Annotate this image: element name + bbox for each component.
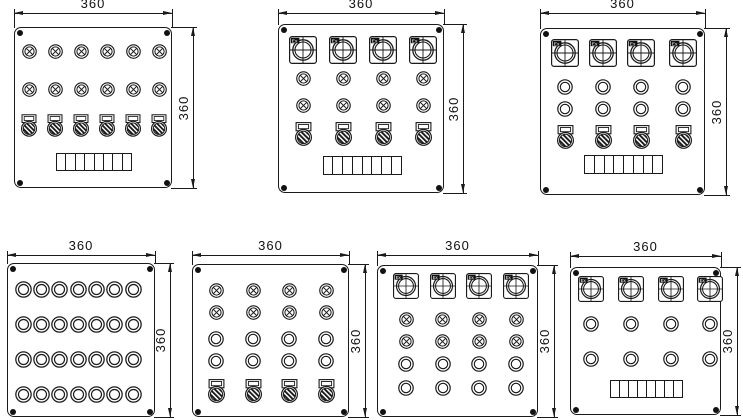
- push-button: [398, 356, 414, 372]
- mounting-screw: [10, 409, 16, 415]
- ex-meter: Ex: [669, 39, 697, 67]
- ex-meter: Ex: [409, 36, 437, 64]
- indicator-lamp: [376, 71, 391, 86]
- extension-line: [14, 9, 15, 28]
- push-button-glyph: [15, 281, 32, 298]
- push-button: [125, 281, 142, 298]
- indicator-lamp: [472, 312, 487, 327]
- dimension-line: [554, 265, 555, 417]
- push-button: [106, 316, 123, 333]
- extension-line: [171, 27, 197, 28]
- push-button-glyph: [208, 353, 224, 369]
- push-button-glyph: [125, 386, 142, 403]
- push-button-glyph: [15, 386, 32, 403]
- indicator-lamp-glyph: [282, 283, 297, 298]
- push-button: [471, 380, 487, 396]
- indicator-lamp: [48, 44, 63, 59]
- dimension-arrow-up-icon: [724, 28, 728, 37]
- selector-switch: [151, 114, 167, 137]
- indicator-lamp: [209, 305, 224, 320]
- push-button: [557, 101, 573, 117]
- extension-line: [570, 252, 571, 268]
- indicator-lamp-glyph: [509, 334, 524, 349]
- indicator-lamp: [246, 305, 261, 320]
- push-button: [208, 331, 224, 347]
- selector-switch-glyph: [47, 114, 63, 137]
- svg-text:Ex: Ex: [621, 278, 627, 283]
- push-button: [33, 386, 50, 403]
- push-button-glyph: [106, 281, 123, 298]
- push-button: [281, 331, 297, 347]
- selector-switch: [633, 125, 650, 149]
- dimension-width-label: 360: [258, 238, 283, 253]
- push-button-glyph: [633, 79, 649, 95]
- indicator-lamp: [509, 334, 524, 349]
- ex-meter: Ex: [393, 273, 419, 299]
- push-button: [633, 101, 649, 117]
- selector-switch: [47, 114, 63, 137]
- indicator-lamp: [100, 82, 115, 97]
- push-button: [557, 79, 573, 95]
- push-button: [663, 351, 679, 367]
- indicator-lamp: [509, 312, 524, 327]
- selector-switch-glyph: [415, 122, 432, 146]
- selector-switch: [557, 125, 574, 149]
- mounting-screw: [697, 31, 703, 37]
- svg-text:Ex: Ex: [700, 278, 706, 283]
- push-button: [623, 316, 639, 332]
- dimension-line: [14, 13, 172, 14]
- selector-switch-glyph: [375, 122, 392, 146]
- indicator-lamp-glyph: [126, 44, 141, 59]
- selector-switch: [99, 114, 115, 137]
- push-button-glyph: [435, 380, 451, 396]
- indicator-lamp: [296, 71, 311, 86]
- label-strip-cell: [673, 380, 683, 398]
- selector-switch: [125, 114, 141, 137]
- extension-line: [171, 188, 197, 189]
- push-button-glyph: [398, 380, 414, 396]
- push-button: [508, 380, 524, 396]
- push-button-glyph: [51, 351, 68, 368]
- indicator-lamp: [74, 44, 89, 59]
- ex-meter: Ex: [627, 39, 655, 67]
- indicator-lamp-glyph: [336, 71, 351, 86]
- selector-switch: [595, 125, 612, 149]
- indicator-lamp: [246, 283, 261, 298]
- push-button-glyph: [245, 353, 261, 369]
- indicator-lamp-glyph: [48, 44, 63, 59]
- push-button-glyph: [88, 281, 105, 298]
- push-button: [663, 316, 679, 332]
- dimension-arrow-left-icon: [7, 253, 16, 257]
- indicator-lamp: [319, 283, 334, 298]
- push-button-glyph: [702, 351, 718, 367]
- indicator-lamp-glyph: [152, 44, 167, 59]
- selector-switch: [245, 379, 262, 403]
- panel-28-buttons: [7, 263, 155, 417]
- dimension-line: [463, 24, 464, 193]
- mounting-screw: [147, 409, 153, 415]
- ex-meter-glyph: Ex: [589, 39, 617, 67]
- push-button: [675, 101, 691, 117]
- push-button: [398, 380, 414, 396]
- ex-meter: Ex: [329, 36, 357, 64]
- indicator-lamp-glyph: [416, 71, 431, 86]
- push-button: [208, 353, 224, 369]
- panel-8-lamps-8-buttons-4-switches: [192, 264, 349, 417]
- indicator-lamp-glyph: [209, 305, 224, 320]
- indicator-lamp: [435, 312, 450, 327]
- push-button: [33, 351, 50, 368]
- ex-meter-glyph: Ex: [578, 276, 604, 302]
- push-button-glyph: [471, 356, 487, 372]
- ex-meter: Ex: [578, 276, 604, 302]
- indicator-lamp: [296, 98, 311, 113]
- dimension-width-label: 360: [610, 0, 635, 11]
- indicator-lamp-glyph: [246, 305, 261, 320]
- indicator-lamp-glyph: [100, 44, 115, 59]
- push-button-glyph: [471, 380, 487, 396]
- indicator-lamp-glyph: [152, 82, 167, 97]
- push-button: [623, 351, 639, 367]
- indicator-lamp-glyph: [22, 82, 37, 97]
- mounting-screw: [713, 407, 719, 413]
- mounting-screw: [436, 27, 442, 33]
- indicator-lamp: [376, 98, 391, 113]
- push-button: [15, 281, 32, 298]
- push-button-glyph: [633, 101, 649, 117]
- drawing-stage: 360360 Ex Ex Ex Ex 360360 Ex Ex Ex Ex 36…: [0, 0, 743, 420]
- push-button-glyph: [675, 79, 691, 95]
- extension-line: [537, 417, 558, 418]
- mounting-screw: [281, 185, 287, 191]
- dimension-height-label: 360: [153, 328, 168, 353]
- push-button-glyph: [33, 386, 50, 403]
- selector-switch-glyph: [335, 122, 352, 146]
- selector-switch: [675, 125, 692, 149]
- push-button: [88, 351, 105, 368]
- indicator-lamp: [209, 283, 224, 298]
- push-button-glyph: [245, 331, 261, 347]
- ex-meter: Ex: [369, 36, 397, 64]
- indicator-lamp-glyph: [376, 98, 391, 113]
- push-button: [583, 351, 599, 367]
- svg-text:Ex: Ex: [332, 38, 338, 44]
- extension-line: [154, 263, 174, 264]
- dimension-arrow-left-icon: [192, 253, 201, 257]
- mounting-screw: [530, 409, 536, 415]
- push-button-glyph: [595, 101, 611, 117]
- indicator-lamp: [336, 71, 351, 86]
- extension-line: [278, 9, 279, 25]
- selector-switch: [318, 379, 335, 403]
- push-button: [51, 316, 68, 333]
- svg-text:Ex: Ex: [432, 275, 438, 280]
- dimension-arrow-up-icon: [168, 263, 172, 272]
- indicator-lamp-glyph: [472, 334, 487, 349]
- push-button-glyph: [508, 380, 524, 396]
- push-button: [125, 351, 142, 368]
- push-button: [70, 316, 87, 333]
- push-button-glyph: [623, 351, 639, 367]
- push-button: [106, 281, 123, 298]
- indicator-lamp: [336, 98, 351, 113]
- push-button: [595, 101, 611, 117]
- dimension-line: [540, 13, 705, 14]
- push-button-glyph: [583, 316, 599, 332]
- indicator-lamp: [416, 71, 431, 86]
- indicator-lamp-glyph: [296, 98, 311, 113]
- push-button: [675, 79, 691, 95]
- push-button: [88, 386, 105, 403]
- dimension-width-label: 360: [81, 0, 106, 11]
- push-button-glyph: [435, 356, 451, 372]
- mounting-screw: [147, 266, 153, 272]
- ex-meter-glyph: Ex: [669, 39, 697, 67]
- mounting-screw: [195, 409, 201, 415]
- panel-4-meters-8-lamps-8-buttons: Ex Ex Ex Ex: [377, 265, 538, 417]
- extension-line: [7, 251, 8, 264]
- push-button-glyph: [675, 101, 691, 117]
- indicator-lamp: [22, 44, 37, 59]
- ex-meter-glyph: Ex: [618, 276, 644, 302]
- push-button-glyph: [663, 316, 679, 332]
- selector-switch-glyph: [73, 114, 89, 137]
- extension-line: [540, 9, 541, 29]
- panel-4-meters-8-lamps-4-switches: Ex Ex Ex Ex: [278, 24, 444, 193]
- push-button: [702, 351, 718, 367]
- push-button: [51, 281, 68, 298]
- indicator-lamp-glyph: [319, 283, 334, 298]
- dimension-line: [170, 263, 171, 417]
- svg-text:Ex: Ex: [292, 38, 298, 44]
- push-button-glyph: [623, 316, 639, 332]
- indicator-lamp: [282, 305, 297, 320]
- dimension-line: [365, 264, 366, 417]
- push-button-glyph: [281, 353, 297, 369]
- indicator-lamp-glyph: [126, 82, 141, 97]
- ex-meter-glyph: Ex: [627, 39, 655, 67]
- extension-line: [348, 417, 369, 418]
- indicator-lamp-glyph: [336, 98, 351, 113]
- indicator-lamp-glyph: [319, 305, 334, 320]
- push-button: [15, 386, 32, 403]
- svg-text:Ex: Ex: [554, 41, 560, 47]
- label-strip: [56, 153, 132, 171]
- push-button: [70, 281, 87, 298]
- mounting-screw: [164, 30, 170, 36]
- selector-switch-glyph: [675, 125, 692, 149]
- mounting-screw: [341, 409, 347, 415]
- label-strip-cell: [122, 153, 132, 171]
- svg-text:Ex: Ex: [396, 275, 402, 280]
- extension-line: [172, 9, 173, 28]
- mounting-screw: [281, 27, 287, 33]
- mounting-screw: [697, 187, 703, 193]
- svg-text:Ex: Ex: [412, 38, 418, 44]
- ex-meter: Ex: [503, 273, 529, 299]
- indicator-lamp: [282, 283, 297, 298]
- push-button: [281, 353, 297, 369]
- push-button: [435, 356, 451, 372]
- dimension-arrow-up-icon: [191, 27, 195, 36]
- label-strip-cell: [391, 156, 402, 175]
- push-button-glyph: [208, 331, 224, 347]
- push-button: [318, 331, 334, 347]
- selector-switch-glyph: [595, 125, 612, 149]
- push-button-glyph: [702, 316, 718, 332]
- push-button-glyph: [70, 351, 87, 368]
- ex-meter-glyph: Ex: [503, 273, 529, 299]
- push-button: [51, 386, 68, 403]
- push-button-glyph: [70, 281, 87, 298]
- mounting-screw: [341, 267, 347, 273]
- indicator-lamp-glyph: [48, 82, 63, 97]
- dimension-arrow-up-icon: [363, 264, 367, 273]
- push-button: [33, 316, 50, 333]
- ex-meter-glyph: Ex: [551, 39, 579, 67]
- push-button: [583, 316, 599, 332]
- dimension-height-label: 360: [537, 329, 552, 354]
- indicator-lamp: [399, 312, 414, 327]
- push-button: [88, 281, 105, 298]
- dimension-line: [193, 27, 194, 188]
- indicator-lamp-glyph: [416, 98, 431, 113]
- push-button: [51, 351, 68, 368]
- push-button-glyph: [33, 281, 50, 298]
- ex-meter-glyph: Ex: [289, 36, 317, 64]
- ex-meter: Ex: [289, 36, 317, 64]
- svg-text:Ex: Ex: [469, 275, 475, 280]
- indicator-lamp: [416, 98, 431, 113]
- label-strip: [323, 156, 402, 175]
- selector-switch: [335, 122, 352, 146]
- selector-switch: [295, 122, 312, 146]
- indicator-lamp-glyph: [22, 44, 37, 59]
- dimension-width-label: 360: [349, 0, 374, 11]
- push-button-glyph: [125, 351, 142, 368]
- selector-switch-glyph: [245, 379, 262, 403]
- indicator-lamp: [48, 82, 63, 97]
- dimension-arrow-left-icon: [540, 11, 549, 15]
- indicator-lamp-glyph: [100, 82, 115, 97]
- ex-meter-glyph: Ex: [430, 273, 456, 299]
- selector-switch-glyph: [295, 122, 312, 146]
- push-button-glyph: [15, 316, 32, 333]
- push-button-glyph: [595, 79, 611, 95]
- push-button-glyph: [398, 356, 414, 372]
- indicator-lamp: [399, 334, 414, 349]
- ex-meter: Ex: [618, 276, 644, 302]
- push-button: [15, 351, 32, 368]
- ex-meter: Ex: [697, 276, 723, 302]
- svg-text:Ex: Ex: [630, 41, 636, 47]
- push-button-glyph: [663, 351, 679, 367]
- indicator-lamp: [100, 44, 115, 59]
- ex-meter: Ex: [658, 276, 684, 302]
- extension-line: [720, 415, 741, 416]
- push-button: [106, 386, 123, 403]
- ex-meter-glyph: Ex: [697, 276, 723, 302]
- indicator-lamp-glyph: [509, 312, 524, 327]
- push-button-glyph: [88, 316, 105, 333]
- panel-4-meters-8-buttons-strip: Ex Ex Ex Ex: [570, 267, 721, 415]
- mounting-screw: [543, 31, 549, 37]
- dimension-height-label: 360: [709, 99, 724, 124]
- dimension-height-label: 360: [720, 329, 735, 354]
- push-button: [245, 331, 261, 347]
- indicator-lamp: [435, 334, 450, 349]
- mounting-screw: [10, 266, 16, 272]
- svg-text:Ex: Ex: [372, 38, 378, 44]
- extension-line: [348, 264, 369, 265]
- selector-switch: [73, 114, 89, 137]
- selector-switch-glyph: [208, 379, 225, 403]
- push-button-glyph: [70, 316, 87, 333]
- dimension-height-label: 360: [176, 95, 191, 120]
- push-button-glyph: [15, 351, 32, 368]
- ex-meter: Ex: [589, 39, 617, 67]
- dimension-arrow-left-icon: [14, 11, 23, 15]
- dimension-width-label: 360: [69, 238, 94, 253]
- dimension-arrow-left-icon: [570, 254, 579, 258]
- indicator-lamp-glyph: [74, 44, 89, 59]
- svg-text:Ex: Ex: [661, 278, 667, 283]
- push-button-glyph: [51, 386, 68, 403]
- panel-12-lamps-6-switches: [14, 27, 172, 188]
- mounting-screw: [436, 185, 442, 191]
- ex-meter-glyph: Ex: [393, 273, 419, 299]
- extension-line: [704, 195, 730, 196]
- push-button: [245, 353, 261, 369]
- selector-switch-glyph: [557, 125, 574, 149]
- dimension-line: [570, 256, 721, 257]
- mounting-screw: [380, 409, 386, 415]
- push-button: [471, 356, 487, 372]
- mounting-screw: [543, 187, 549, 193]
- dimension-arrow-up-icon: [735, 267, 739, 276]
- svg-text:Ex: Ex: [506, 275, 512, 280]
- mounting-screw: [17, 30, 23, 36]
- indicator-lamp-glyph: [399, 334, 414, 349]
- push-button-glyph: [125, 316, 142, 333]
- push-button-glyph: [318, 331, 334, 347]
- indicator-lamp-glyph: [209, 283, 224, 298]
- push-button-glyph: [583, 351, 599, 367]
- mounting-screw: [17, 180, 23, 186]
- label-strip: [610, 380, 683, 398]
- dimension-line: [278, 13, 444, 14]
- mounting-screw: [164, 180, 170, 186]
- ex-meter-glyph: Ex: [409, 36, 437, 64]
- selector-switch-glyph: [281, 379, 298, 403]
- label-strip-cell: [652, 155, 663, 174]
- mounting-screw: [195, 267, 201, 273]
- push-button: [125, 316, 142, 333]
- extension-line: [192, 251, 193, 265]
- dimension-height-label: 360: [348, 328, 363, 353]
- dimension-line: [7, 255, 155, 256]
- push-button-glyph: [106, 351, 123, 368]
- extension-line: [443, 24, 467, 25]
- indicator-lamp: [126, 44, 141, 59]
- selector-switch: [281, 379, 298, 403]
- dimension-line: [377, 255, 538, 256]
- selector-switch-glyph: [125, 114, 141, 137]
- push-button-glyph: [33, 316, 50, 333]
- indicator-lamp-glyph: [246, 283, 261, 298]
